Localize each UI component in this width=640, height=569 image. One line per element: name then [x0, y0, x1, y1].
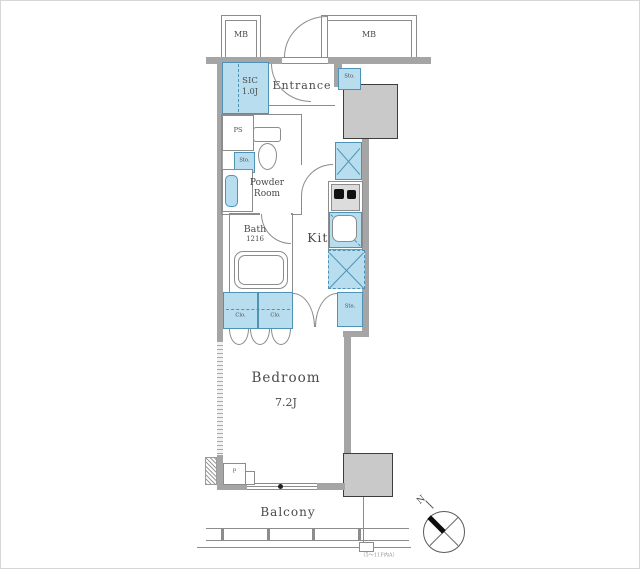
stove-burner-left	[334, 189, 344, 199]
bathtub-inner	[238, 255, 284, 285]
entrance-step-line	[269, 105, 335, 106]
pillar-top	[343, 84, 398, 139]
bath-label: Bath	[235, 225, 275, 235]
balcony-partition-hatch	[205, 457, 217, 485]
ps-storage-label: Sto.	[236, 158, 254, 163]
balcony-note-box	[359, 542, 374, 552]
window-lock-dot	[278, 484, 283, 489]
bath-size-label: 1216	[235, 236, 275, 243]
front-door-threshold	[282, 57, 328, 64]
balcony-rail-post-1	[221, 528, 224, 541]
balcony-rail-post-2	[267, 528, 270, 541]
kitchen-storage-box	[337, 292, 363, 327]
bedroom-size-label: 7.2J	[236, 397, 336, 409]
closet-left	[223, 292, 258, 329]
toilet-tank	[253, 127, 281, 142]
sic-label: SIC	[231, 77, 269, 86]
balcony-rail-line-2	[206, 540, 409, 541]
kitchen-sink	[332, 215, 357, 242]
powder-room-label-1: Powder	[241, 179, 293, 188]
powder-room-label-2: Room	[241, 190, 293, 199]
wall-bottom-right-stub	[317, 483, 345, 490]
bedroom-door-left-arc	[293, 293, 315, 327]
refrigerator-space	[328, 250, 365, 289]
entrance-storage-label: Sto.	[340, 74, 360, 79]
window-left	[217, 341, 223, 455]
floor-footnote: （5〜11F内A）	[347, 553, 412, 558]
balcony-right-line	[363, 497, 364, 544]
kitchen-storage-label: Sto.	[339, 304, 361, 309]
entrance-door-arc	[271, 64, 311, 102]
front-door-leaf	[327, 16, 328, 57]
balcony-label: Balcony	[248, 506, 328, 519]
pillar-bottom	[343, 453, 393, 497]
balcony-rail-line-1	[206, 528, 409, 529]
balcony-outer-line	[197, 547, 411, 548]
closet-left-label: Clo.	[226, 313, 256, 318]
closet-door-arc-2	[250, 329, 270, 345]
meter-box-right-label: MB	[321, 31, 417, 39]
closet-right-label: Clo.	[261, 313, 291, 318]
balcony-rail-post-4	[358, 528, 361, 541]
meter-box-left-inner	[225, 20, 257, 59]
vanity-basin	[225, 175, 238, 207]
meter-box-left-label: MB	[221, 31, 261, 39]
balcony-rail-post-3	[312, 528, 315, 541]
bedroom-door-right-arc	[315, 293, 337, 327]
wall-bedroom-right	[344, 337, 351, 455]
bedroom-label: Bedroom	[236, 371, 336, 385]
pipe-box-step	[245, 471, 255, 485]
closet-right	[258, 292, 293, 329]
closet-door-arc-1	[229, 329, 249, 345]
water-heater-box	[335, 142, 362, 180]
sic-size-label: 1.0J	[231, 88, 269, 96]
floor-plan: MB MB SIC 1.0J Entrance Sto. PS Sto. Pow…	[0, 0, 640, 569]
meter-box-right-inner	[327, 20, 412, 59]
front-door-arc	[284, 16, 327, 57]
stove-burner-right	[347, 190, 356, 199]
pipe-box-label: P	[225, 469, 245, 474]
closet-hanger-dash	[226, 309, 290, 310]
ps-label: PS	[222, 127, 254, 134]
compass-north-arrow	[425, 500, 433, 508]
compass-north-label: N	[413, 492, 431, 510]
closet-door-arc-3	[271, 329, 291, 345]
